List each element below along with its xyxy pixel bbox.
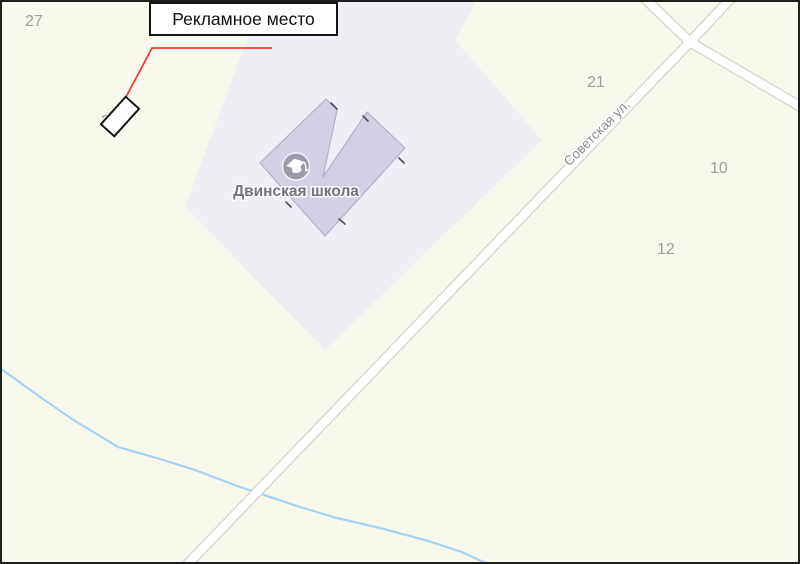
annotation-label-box: Рекламное место bbox=[150, 3, 337, 35]
school-label: Двинская школа bbox=[233, 183, 359, 200]
house-number-21: 21 bbox=[587, 74, 605, 91]
house-number-10: 10 bbox=[710, 160, 728, 177]
annotation-label: Рекламное место bbox=[172, 9, 315, 29]
house-number-27: 27 bbox=[25, 13, 43, 30]
house-number-12: 12 bbox=[657, 241, 675, 258]
annotated-map: Советская ул. 27 25 21 10 12 Двинская шк… bbox=[0, 0, 800, 564]
map-canvas: Советская ул. 27 25 21 10 12 Двинская шк… bbox=[0, 0, 800, 564]
